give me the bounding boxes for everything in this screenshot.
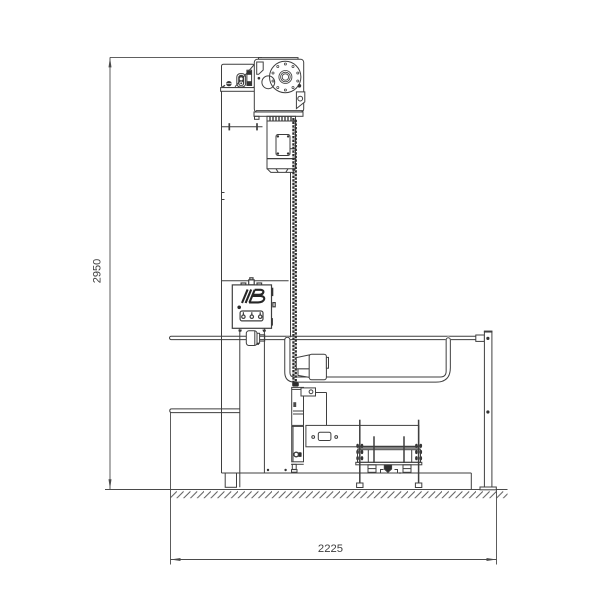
svg-text:2950: 2950 <box>92 259 104 283</box>
svg-text:2225: 2225 <box>318 543 343 555</box>
